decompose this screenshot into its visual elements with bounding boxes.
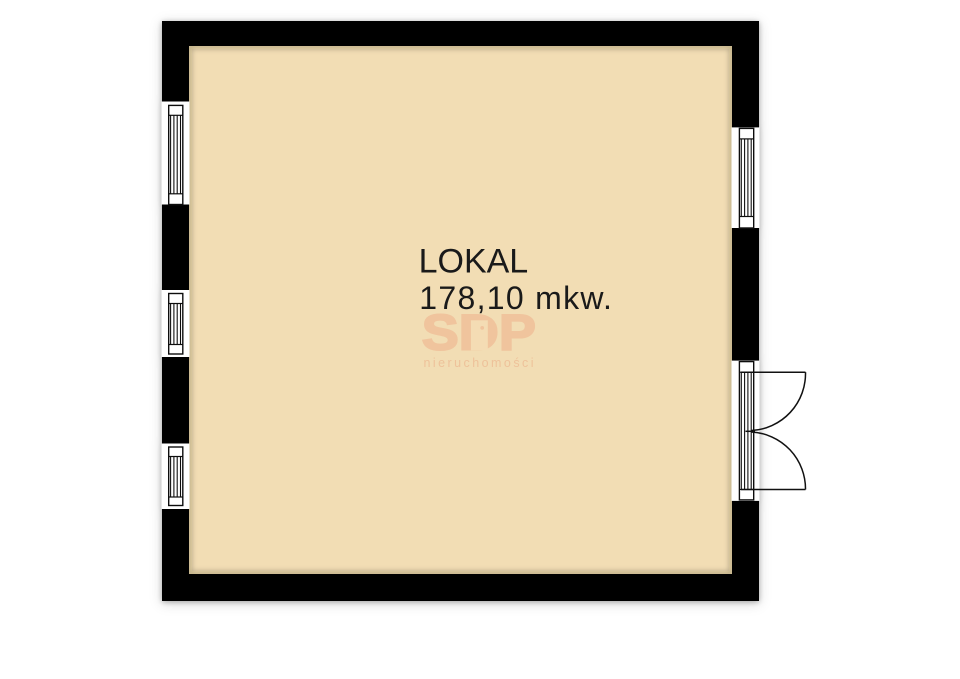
svg-text:LOKAL: LOKAL (419, 242, 529, 280)
svg-text:nieruchomości: nieruchomości (424, 356, 536, 370)
